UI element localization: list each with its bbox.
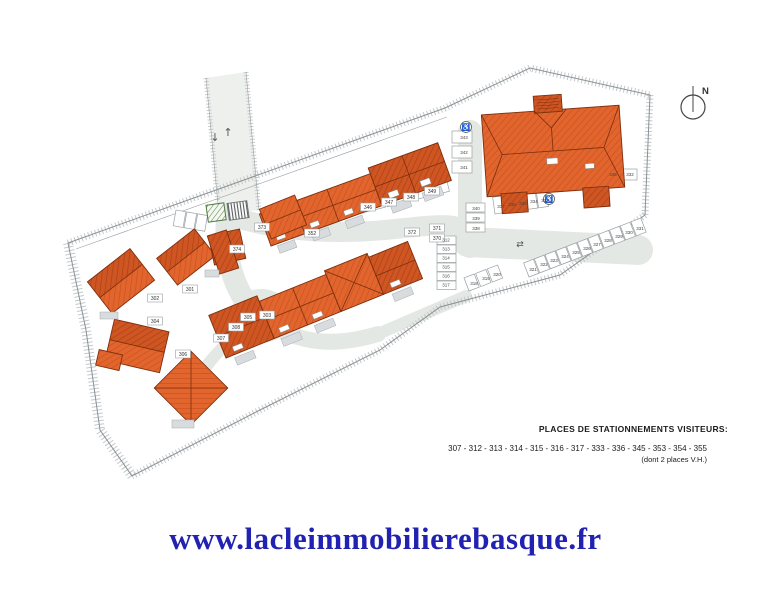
- stall-number: 326: [583, 246, 591, 251]
- svg-text:304: 304: [151, 319, 160, 325]
- road-arrow-up-icon: ↑: [223, 126, 232, 139]
- legend-note: (dont 2 places V.H.): [641, 455, 707, 464]
- stall-number: 345: [609, 172, 617, 177]
- stall-number: 341: [460, 165, 468, 170]
- svg-text:301: 301: [186, 287, 195, 293]
- stall-number: 317: [442, 283, 450, 288]
- stall-number: 328: [604, 238, 612, 243]
- plot-label: 346: [361, 203, 376, 211]
- plot-label: 301: [183, 285, 198, 293]
- stall-number: 336: [508, 202, 516, 207]
- svg-text:374: 374: [233, 247, 242, 253]
- stall-number: 335: [519, 201, 527, 206]
- plot-label: 303: [260, 311, 275, 319]
- wheelchair-icon: ♿: [462, 123, 471, 132]
- stall-number: 324: [561, 254, 569, 259]
- stall-number: 332: [626, 172, 634, 177]
- plot-label: 304: [148, 317, 163, 325]
- stall-number: 331: [636, 226, 644, 231]
- compass: N: [681, 86, 709, 119]
- stall-number: 322: [540, 262, 548, 267]
- striped-utility-square: [227, 201, 249, 221]
- stall-number: 325: [572, 250, 580, 255]
- legend-numbers: 307 - 312 - 313 - 314 - 315 - 316 - 317 …: [448, 444, 707, 453]
- road-arrow-down-icon: ↓: [210, 131, 219, 144]
- plot-label: 306: [176, 350, 191, 358]
- stall-number: 338: [472, 226, 480, 231]
- svg-text:308: 308: [232, 325, 241, 331]
- stall-number: 330: [625, 230, 633, 235]
- plot-label: 374: [230, 245, 245, 253]
- stall-number: 342: [460, 150, 468, 155]
- stall-number: 318: [470, 281, 478, 286]
- stall-number: 340: [472, 206, 480, 211]
- plot-label: 308: [229, 323, 244, 331]
- plot-label: 307: [214, 334, 229, 342]
- svg-text:307: 307: [217, 336, 226, 342]
- plot-label: 305: [241, 313, 256, 321]
- svg-text:373: 373: [258, 225, 267, 231]
- svg-text:371: 371: [433, 226, 442, 232]
- stall-number: 319: [482, 276, 490, 281]
- stall-number: 312: [442, 238, 450, 243]
- svg-text:302: 302: [151, 296, 160, 302]
- svg-text:306: 306: [179, 352, 188, 358]
- plot-label: 302: [148, 294, 163, 302]
- stall-number: 315: [442, 265, 450, 270]
- stall-number: 334: [530, 199, 538, 204]
- svg-text:370: 370: [433, 236, 442, 242]
- stall-number: 313: [442, 247, 450, 252]
- plot-label: 373: [255, 223, 270, 231]
- website-url[interactable]: www.lacleimmobilierebasque.fr: [0, 521, 771, 557]
- svg-text:303: 303: [263, 313, 272, 319]
- stall-number: 337: [497, 204, 505, 209]
- stall-number: 316: [442, 274, 450, 279]
- stall-number: 321: [529, 267, 537, 272]
- svg-text:348: 348: [407, 195, 416, 201]
- stall-number: 327: [593, 242, 601, 247]
- stall-number: 320: [493, 272, 501, 277]
- svg-text:352: 352: [308, 231, 317, 237]
- stall-number: 314: [442, 256, 450, 261]
- stall-number: 323: [550, 258, 558, 263]
- stall-number: 339: [472, 216, 480, 221]
- plot-label: 349: [425, 187, 440, 195]
- plot-label: 348: [404, 193, 419, 201]
- plot-label: 352: [305, 229, 320, 237]
- svg-text:347: 347: [385, 200, 394, 206]
- svg-text:346: 346: [364, 205, 373, 211]
- stall-number: 333: [541, 198, 549, 203]
- svg-text:372: 372: [408, 230, 417, 236]
- legend-title: PLACES DE STATIONNEMENTS VISITEURS:: [539, 424, 728, 434]
- accessible-parking-marker: ♿: [461, 122, 472, 133]
- plot-label: 372: [405, 228, 420, 236]
- plot-label: 347: [382, 198, 397, 206]
- stall-number: 329: [615, 234, 623, 239]
- two-way-arrow-icon: ⇄: [516, 240, 524, 250]
- green-planting-square: [206, 203, 226, 222]
- plot-label: 371: [430, 224, 445, 232]
- svg-text:305: 305: [244, 315, 253, 321]
- compass-north-label: N: [702, 86, 709, 97]
- svg-text:349: 349: [428, 189, 437, 195]
- stall-number: 343: [460, 135, 468, 140]
